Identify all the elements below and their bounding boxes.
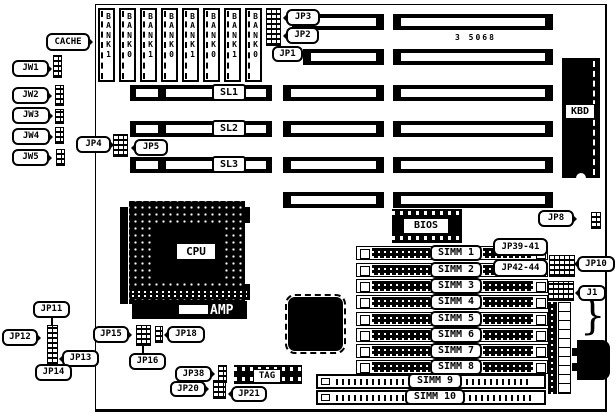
slot-label-sl3: SL3 [212,156,246,173]
isa-slot [393,157,553,173]
jp15-16-jumper [136,325,151,346]
simm-label-9: SIMM 9 [408,373,462,389]
isa-slot [393,121,553,137]
isa-slot [393,14,553,30]
callout-jp10: JP10 [577,256,615,272]
callout-jp11: JP11 [33,301,70,318]
bank-socket: B A N K 1 [224,8,241,82]
pointer-icon [47,153,52,163]
cpu-text: CPU [186,246,206,257]
jp13-label: JP13 [70,354,92,363]
simm-label-3: SIMM 3 [430,278,482,294]
bank-socket: B A N K 1 [182,8,199,82]
callout-jp14: JP14 [35,364,72,381]
simm-text: SIMM 7 [438,346,474,356]
pointer-icon [47,91,52,101]
jp18-jumper [155,326,163,343]
kbd-label: KBD [565,104,595,119]
bank-label: B A N K 1 [188,12,197,59]
jp8-jumper [591,212,601,229]
simm-text: SIMM 1 [438,248,474,258]
callout-jp5: JP5 [134,139,168,156]
socket-edge [101,11,103,79]
bank-label: B A N K 0 [125,12,134,59]
jp10-label: JP10 [585,260,607,269]
amp-pin-strip [132,289,247,299]
jw5-label: JW5 [22,153,38,162]
pointer-icon [572,214,577,224]
jp2-label: JP2 [294,31,310,40]
jw2-jumper [55,85,64,106]
isa-slot-sl2 [130,121,272,137]
simm-text: SIMM 2 [438,265,474,275]
jp1-3-jumper [266,8,281,46]
callout-jw4: JW4 [12,128,50,145]
tag-label: TAG [253,369,281,383]
jp11-14-jumper [47,325,58,365]
callout-j1: J1 [578,285,606,301]
din-connector-tab [572,363,577,371]
jw1-label: JW1 [22,64,38,73]
pointer-icon [47,64,52,74]
simm-label-10: SIMM 10 [405,389,465,405]
pointer-icon [127,330,132,340]
jp1-label: JP1 [279,50,295,59]
cpu-socket-bar [120,207,128,304]
callout-jp8: JP8 [538,210,574,227]
jw3-label: JW3 [23,111,39,120]
pointer-icon [131,143,136,153]
callout-jw3: JW3 [12,107,50,124]
simm-text: SIMM 4 [438,297,474,307]
j1-jumper [548,281,574,301]
pointer-icon [59,354,64,364]
simm-label-4: SIMM 4 [430,294,482,310]
callout-jp2: JP2 [286,27,319,44]
isa-slot-sl3 [130,157,272,173]
jw4-label: JW4 [23,132,39,141]
kbd-notch [576,173,586,178]
pointer-icon [48,111,53,121]
isa-slot [393,192,553,208]
simm-text: SIMM 6 [438,330,474,340]
cpu-socket-tab [244,207,250,223]
pointer-icon [575,288,580,298]
pointer-icon [283,13,288,23]
jp42-44-label: JP42-44 [502,264,540,273]
isa-slot [283,192,384,208]
jp10-jumper [549,255,575,277]
simm-label-5: SIMM 5 [430,311,482,327]
isa-slot [393,49,553,65]
socket-edge [122,11,124,79]
brace-icon: } [580,296,605,336]
simm-text: SIMM 9 [417,376,453,386]
jw4-jumper [55,127,64,144]
slot-label-sl1: SL1 [212,84,246,101]
amp-key [179,305,208,314]
jp11-label: JP11 [41,305,63,314]
sl2-text: SL2 [220,124,238,134]
simm-text: SIMM 10 [414,392,456,402]
jp18-label: JP18 [175,330,197,339]
callout-jp21: JP21 [231,386,267,402]
simm-text: SIMM 5 [438,314,474,324]
simm-text: SIMM 8 [438,362,474,372]
callout-jp3: JP3 [286,9,320,26]
callout-cache: CACHE [46,33,90,51]
socket-edge [227,11,229,79]
bank-socket: B A N K 0 [245,8,262,82]
jp39-41-label: JP39-41 [502,243,540,252]
simm-label-2: SIMM 2 [430,262,482,278]
callout-jp4: JP4 [76,136,111,153]
callout-jp1: JP1 [272,46,303,62]
jp16-label: JP16 [137,357,159,366]
amp-text: AMP [210,303,233,318]
pointer-icon [88,37,93,47]
jp12-label: JP12 [9,333,31,342]
bank-socket: B A N K 1 [140,8,157,82]
callout-jp16: JP16 [129,353,166,370]
jp20-21-jumper [213,380,226,399]
socket-edge [164,11,166,79]
jp4-label: JP4 [85,140,101,149]
pointer-icon [36,333,41,343]
callout-jw2: JW2 [12,87,49,104]
bank-socket: B A N K 0 [203,8,220,82]
simm-text: SIMM 3 [438,281,474,291]
callout-jp38: JP38 [175,366,212,382]
jw1-jumper [53,55,62,78]
simm-label-6: SIMM 6 [430,327,482,343]
jp5-label: JP5 [143,143,159,152]
bank-socket: B A N K 0 [119,8,136,82]
callout-jp42-44: JP42-44 [493,259,548,277]
bank-socket: B A N K 0 [161,8,178,82]
pin-header-strip [548,302,557,394]
jw5-jumper [56,149,65,166]
pointer-icon [574,259,579,269]
pointer-icon [283,31,288,41]
bank-label: B A N K 1 [230,12,239,59]
callout-jp18: JP18 [167,326,205,343]
pointer-icon [228,389,233,399]
qfp-chip [288,297,343,351]
isa-slot-sl1 [130,85,272,101]
callout-jp39-41: JP39-41 [493,238,548,256]
bank-label: B A N K 0 [251,12,260,59]
slot-label-sl2: SL2 [212,120,246,137]
jw3-jumper [55,109,64,124]
pointer-icon [109,140,114,150]
jp4-5-jumper [113,134,128,157]
j1-label: J1 [587,289,598,298]
pointer-icon [204,384,209,394]
part-number: 3 5068 [455,34,496,42]
callout-jp20: JP20 [170,381,206,397]
callout-jw1: JW1 [12,60,49,77]
kbd-text: KBD [571,107,589,117]
isa-slot [283,121,384,137]
amp-label: AMP [210,304,233,317]
motherboard-diagram: 3 5068 B A N K 1 B A N K 0 B A N K 1 B A… [0,0,616,415]
socket-edge [206,11,208,79]
pointer-icon [164,330,169,340]
bios-text: BIOS [414,221,438,231]
jp38-label: JP38 [183,370,205,379]
bios-label: BIOS [403,218,449,234]
isa-slot [393,85,553,101]
simm-label-1: SIMM 1 [430,245,482,261]
bank-label: B A N K 0 [167,12,176,59]
jp20-label: JP20 [177,385,199,394]
isa-slot [283,157,384,173]
callout-jp15: JP15 [93,326,129,343]
socket-edge [143,11,145,79]
isa-slot [303,49,384,65]
cpu-label: CPU [176,243,216,260]
jp8-label: JP8 [548,214,564,223]
socket-edge [248,11,250,79]
jp21-label: JP21 [238,390,260,399]
pointer-icon [210,369,215,379]
socket-edge [185,11,187,79]
jp15-label: JP15 [100,330,122,339]
bank-label: B A N K 1 [104,12,113,59]
simm-label-7: SIMM 7 [430,343,482,359]
pointer-icon [48,132,53,142]
callout-jw5: JW5 [12,149,49,166]
sl1-text: SL1 [220,88,238,98]
jp3-label: JP3 [295,13,311,22]
bank-label: B A N K 1 [146,12,155,59]
isa-slot [283,85,384,101]
din-connector [577,340,610,380]
jp14-label: JP14 [43,368,65,377]
din-connector-tab [572,348,577,356]
bank-label: B A N K 0 [209,12,218,59]
sl3-text: SL3 [220,160,238,170]
jw2-label: JW2 [22,91,38,100]
pin-header-squares [558,302,571,394]
cache-label: CACHE [54,38,81,47]
bank-socket: B A N K 1 [98,8,115,82]
tag-text: TAG [259,372,275,381]
callout-jp12: JP12 [2,329,38,346]
